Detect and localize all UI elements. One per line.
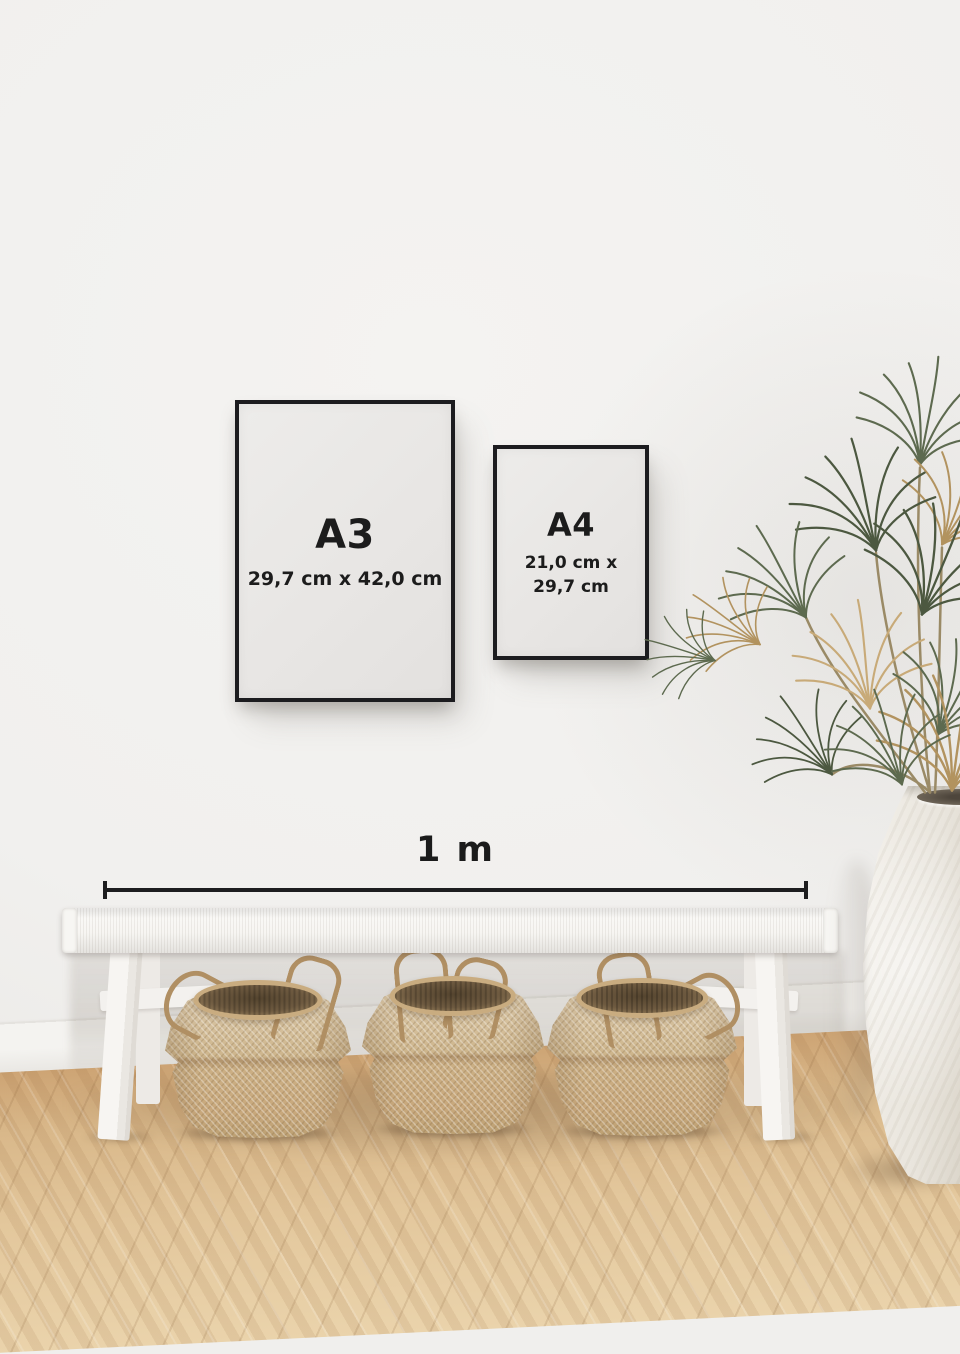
poster-frame-a3: A3 29,7 cm x 42,0 cm — [235, 400, 455, 702]
seagrass-basket-1 — [165, 960, 351, 1138]
frame-dimensions-line-2: 29,7 cm — [525, 576, 618, 600]
palm-plant — [620, 310, 960, 815]
scale-tick-right — [804, 881, 808, 899]
basket-rim — [193, 980, 322, 1020]
basket-rim — [390, 976, 516, 1016]
bench-seat — [62, 908, 838, 953]
frame-size-label: A3 — [315, 512, 375, 558]
scale-label: 1 m — [416, 830, 495, 870]
bench-seat-edge-left — [62, 908, 77, 953]
seagrass-basket-2 — [362, 956, 544, 1134]
basket-rim — [576, 978, 708, 1018]
frame-dimensions: 21,0 cm x 29,7 cm — [525, 552, 618, 600]
scale-tick-left — [103, 881, 107, 899]
scale-bar: 1 m — [103, 880, 808, 900]
frame-dimensions-line-1: 21,0 cm x — [525, 552, 618, 576]
scene-root: { "scene": { "description": "Interior wa… — [0, 0, 960, 1200]
frame-dimensions: 29,7 cm x 42,0 cm — [248, 568, 443, 590]
seagrass-basket-3 — [547, 958, 737, 1136]
frame-size-label: A4 — [547, 506, 595, 544]
scale-line — [103, 888, 808, 892]
